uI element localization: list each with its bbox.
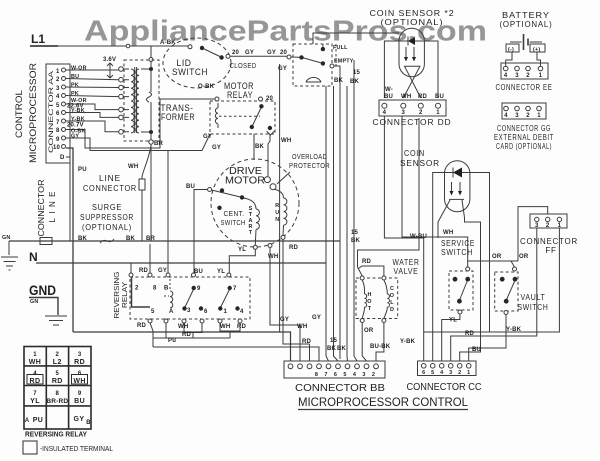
svg-text:7: 7 [233,286,237,292]
svg-text:2: 2 [546,223,550,229]
svg-text:5: 5 [56,371,60,377]
svg-text:OVERLOAD: OVERLOAD [292,154,327,161]
svg-text:GN: GN [30,299,39,305]
svg-text:1: 1 [224,309,228,315]
svg-text:RD: RD [139,268,149,274]
svg-text:GY: GY [158,268,167,274]
svg-text:W-OR: W-OR [71,66,87,72]
svg-text:WH: WH [401,94,411,100]
svg-text:2: 2 [526,73,530,79]
svg-text:BU: BU [194,269,203,275]
svg-text:BK: BK [126,236,136,242]
svg-text:FORMER: FORMER [161,112,195,122]
svg-text:RD: RD [418,94,428,100]
svg-text:1: 1 [33,352,37,358]
svg-text:4: 4 [240,309,244,315]
svg-text:CENT.: CENT. [224,211,245,218]
svg-text:5: 5 [151,309,155,315]
svg-text:D: D [390,307,394,313]
svg-text:CARD (OPTIONAL): CARD (OPTIONAL) [496,142,552,151]
svg-text:20: 20 [280,50,288,56]
svg-text:BK: BK [334,78,344,84]
svg-text:3: 3 [449,370,452,376]
svg-text:SWITCH: SWITCH [518,303,549,312]
svg-text:5: 5 [56,103,60,109]
svg-text:CLOSED: CLOSED [230,63,257,70]
svg-text:T: T [368,306,372,312]
svg-text:15: 15 [330,338,338,344]
svg-text:PK: PK [71,91,79,97]
svg-text:SWITCH: SWITCH [441,248,473,257]
svg-text:A: A [169,309,174,315]
svg-text:GY: GY [212,145,221,151]
svg-text:RD: RD [52,378,63,385]
svg-text:WH: WH [178,324,188,330]
svg-text:GY: GY [312,315,321,321]
svg-text:20: 20 [266,96,274,102]
svg-text:BU: BU [472,347,481,353]
svg-text:GND: GND [29,282,56,298]
svg-text:RELAY: RELAY [120,282,129,308]
svg-text:BK: BK [351,238,361,244]
svg-text:10: 10 [53,145,61,151]
svg-text:1: 1 [539,73,543,79]
svg-text:PU: PU [33,417,44,424]
svg-text:O: O [390,293,394,299]
svg-text:LINE: LINE [99,174,121,183]
svg-text:8: 8 [56,128,60,134]
svg-text:W-OR: W-OR [71,98,87,104]
svg-text:9: 9 [56,137,60,143]
svg-text:WH: WH [128,164,138,170]
svg-text:RD: RD [74,359,85,366]
svg-text:RD: RD [30,378,41,385]
svg-text:2: 2 [135,286,139,292]
svg-text:2: 2 [372,372,375,378]
svg-text:CONNECTOR AA: CONNECTOR AA [48,70,55,153]
svg-text:3: 3 [362,372,365,378]
svg-text:BR-RD: BR-RD [46,398,68,405]
svg-text:R: R [275,203,279,209]
svg-text:Pu: Pu [168,338,176,344]
svg-text:CONNECTOR EE: CONNECTOR EE [496,83,553,92]
svg-text:5: 5 [431,370,434,376]
svg-text:BK: BK [350,79,360,85]
svg-text:8: 8 [56,391,60,397]
svg-text:RELAY: RELAY [227,90,253,100]
svg-text:2: 2 [56,77,60,83]
svg-text:BK: BK [78,236,88,242]
svg-text:WH: WH [297,324,307,330]
svg-text:RD: RD [182,332,192,338]
svg-text:RD: RD [362,259,372,265]
svg-text:YL: YL [238,247,246,253]
svg-text:BU: BU [71,74,79,80]
svg-text:2: 2 [56,352,60,358]
svg-text:GN: GN [2,235,11,241]
svg-text:1: 1 [436,110,440,116]
svg-text:GY: GY [280,317,289,323]
svg-text:MICROPROCESSOR CONTROL: MICROPROCESSOR CONTROL [298,395,468,409]
svg-text:1: 1 [558,223,562,229]
svg-text:WH: WH [220,324,230,330]
svg-text:D: D [60,155,65,161]
svg-text:PU: PU [78,167,87,173]
svg-text:BK: BK [337,346,347,352]
svg-text:O: O [367,299,371,305]
svg-text:SWITCH: SWITCH [221,220,246,227]
svg-text:MICROPROCESSOR: MICROPROCESSOR [28,62,38,163]
svg-text:VALVE: VALVE [394,267,419,276]
svg-text:EMPTY: EMPTY [334,59,354,65]
svg-text:6: 6 [422,370,425,376]
svg-text:(OPTIONAL): (OPTIONAL) [82,223,132,232]
svg-text:5: 5 [343,372,346,378]
svg-text:(-): (-) [508,47,514,53]
svg-text:15: 15 [351,230,359,236]
svg-text:O-BK: O-BK [198,84,215,90]
svg-text:CONNECTOR: CONNECTOR [520,237,578,246]
svg-text:1: 1 [537,113,541,119]
svg-text:B: B [86,420,91,426]
svg-text:W-: W- [385,87,393,93]
svg-text:U: U [275,210,279,216]
svg-text:3: 3 [78,352,82,358]
svg-text:OR: OR [519,254,529,260]
svg-text:20: 20 [232,50,240,56]
svg-text:GY: GY [267,50,276,56]
svg-text:A-BK: A-BK [160,40,176,46]
svg-text:3: 3 [402,110,406,116]
svg-text:1: 1 [56,69,60,75]
svg-text:YL: YL [449,318,457,324]
svg-text:GY: GY [74,416,85,423]
svg-text:GY: GY [203,134,212,140]
svg-text:WATER: WATER [393,258,420,267]
svg-text:C: C [390,286,394,292]
svg-text:BU-BK: BU-BK [370,344,391,350]
svg-text:COIN: COIN [404,149,425,158]
svg-text:WH: WH [268,254,278,260]
svg-text:4: 4 [383,110,387,116]
svg-text:4: 4 [56,94,60,100]
svg-text:BU: BU [384,94,393,100]
svg-text:VAULT: VAULT [521,293,546,302]
svg-text:BK: BK [255,144,265,150]
svg-text:6: 6 [204,309,208,315]
svg-text:(+): (+) [533,47,540,53]
svg-text:WH: WH [281,138,291,144]
svg-text:-INSULATED TERMINAL: -INSULATED TERMINAL [40,446,113,453]
svg-text:WH: WH [29,359,41,366]
svg-text:CONNECTOR CC: CONNECTOR CC [407,382,482,393]
svg-text:BU: BU [435,94,444,100]
svg-text:COIN SENSOR *2: COIN SENSOR *2 [370,9,455,18]
svg-text:BR: BR [146,236,156,242]
svg-text:EXTERNAL DEBIT: EXTERNAL DEBIT [494,133,554,142]
svg-text:BATTERY: BATTERY [502,11,550,20]
svg-text:4: 4 [504,113,508,119]
svg-text:8: 8 [153,286,157,292]
svg-text:OR: OR [364,328,374,334]
svg-text:6: 6 [334,372,337,378]
svg-text:GY: GY [71,134,79,140]
svg-text:RD: RD [137,323,147,329]
svg-text:B: B [164,286,169,292]
svg-text:WH: WH [443,230,453,236]
svg-text:RD: RD [465,331,475,337]
svg-text:8: 8 [315,372,318,378]
svg-text:BR: BR [154,141,164,147]
svg-text:FULL: FULL [333,45,348,51]
svg-text:7: 7 [56,120,60,126]
svg-text:CONNECTOR: CONNECTOR [37,179,46,236]
svg-text:3: 3 [535,223,539,229]
svg-text:SURGE: SURGE [92,203,122,212]
svg-text:2: 2 [458,370,461,376]
svg-text:3: 3 [515,113,519,119]
svg-text:FF: FF [545,246,556,255]
svg-text:3: 3 [56,86,60,92]
svg-text:3.6V: 3.6V [103,57,116,63]
svg-text:N: N [275,217,279,223]
svg-text:1: 1 [467,370,470,376]
svg-text:T: T [249,230,253,236]
svg-text:2: 2 [419,110,423,116]
svg-text:BK: BK [327,346,337,352]
svg-text:REVERSING RELAY: REVERSING RELAY [25,432,87,439]
svg-text:OR: OR [492,254,502,260]
svg-text:6: 6 [78,371,82,377]
svg-text:RD: RD [302,339,312,345]
svg-text:CONNECTOR: CONNECTOR [83,184,137,193]
svg-text:SERVICE: SERVICE [441,239,475,248]
svg-text:GY: GY [278,66,287,72]
svg-text:7: 7 [33,391,37,397]
svg-text:CONTROL: CONTROL [14,90,24,138]
svg-text:PROTECTOR: PROTECTOR [289,163,330,170]
svg-text:SENSOR: SENSOR [400,159,440,168]
svg-text:W-BU: W-BU [410,234,427,240]
svg-text:RD: RD [237,324,247,330]
svg-text:L1: L1 [31,32,45,46]
svg-text:CONNECTOR BB: CONNECTOR BB [295,383,385,394]
svg-text:L2: L2 [53,359,62,366]
svg-text:L: L [390,300,394,306]
svg-text:9: 9 [197,286,201,292]
svg-text:YL: YL [217,269,225,275]
svg-text:BU: BU [74,398,85,405]
svg-text:PK: PK [71,83,79,89]
svg-text:SUPPRESSOR: SUPPRESSOR [80,213,134,222]
svg-text:A: A [25,418,30,424]
svg-text:WH: WH [73,378,85,385]
svg-text:RD: RD [289,245,299,251]
svg-text:4: 4 [504,73,508,79]
svg-text:3: 3 [187,308,191,314]
svg-text:6: 6 [56,111,60,117]
svg-text:15: 15 [353,70,361,76]
svg-text:GY: GY [245,50,254,56]
svg-text:YL: YL [30,398,40,405]
svg-text:9: 9 [78,391,82,397]
svg-text:(OPTIONAL): (OPTIONAL) [381,18,444,27]
svg-text:Y-BK: Y-BK [71,108,85,114]
svg-text:3: 3 [515,73,519,79]
svg-text:7: 7 [324,372,327,378]
svg-text:4: 4 [33,371,37,377]
svg-text:N: N [29,250,38,264]
svg-text:SWITCH: SWITCH [172,67,208,77]
svg-text:MOTOR: MOTOR [225,175,265,187]
svg-text:Y-BK: Y-BK [506,327,522,333]
svg-text:Y-BK: Y-BK [400,339,416,345]
svg-text:Y-BK: Y-BK [71,117,85,123]
svg-text:H: H [367,292,371,298]
svg-text:(OPTIONAL): (OPTIONAL) [500,20,553,29]
svg-text:2: 2 [526,113,530,119]
svg-text:BU: BU [186,184,195,190]
svg-text:CONNECTOR DD: CONNECTOR DD [373,118,452,127]
svg-text:CONNECTOR GG: CONNECTOR GG [497,124,551,133]
